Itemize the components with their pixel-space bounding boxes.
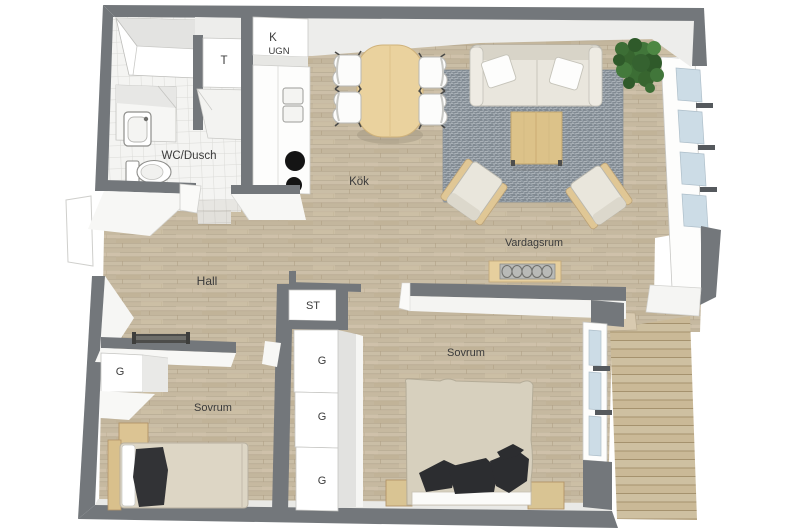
svg-text:Sovrum: Sovrum xyxy=(447,347,485,359)
svg-text:WC/Dusch: WC/Dusch xyxy=(162,150,217,162)
svg-text:UGN: UGN xyxy=(268,46,289,57)
svg-text:G: G xyxy=(116,366,125,378)
svg-text:G: G xyxy=(318,475,327,487)
svg-text:Vardagsrum: Vardagsrum xyxy=(505,237,563,249)
svg-text:ST: ST xyxy=(306,300,320,312)
svg-text:Hall: Hall xyxy=(197,274,218,288)
svg-text:G: G xyxy=(318,355,327,367)
svg-text:T: T xyxy=(220,55,227,67)
svg-text:K: K xyxy=(269,32,277,44)
svg-text:G: G xyxy=(318,411,327,423)
svg-text:Kök: Kök xyxy=(349,176,369,188)
svg-text:Sovrum: Sovrum xyxy=(194,402,232,414)
